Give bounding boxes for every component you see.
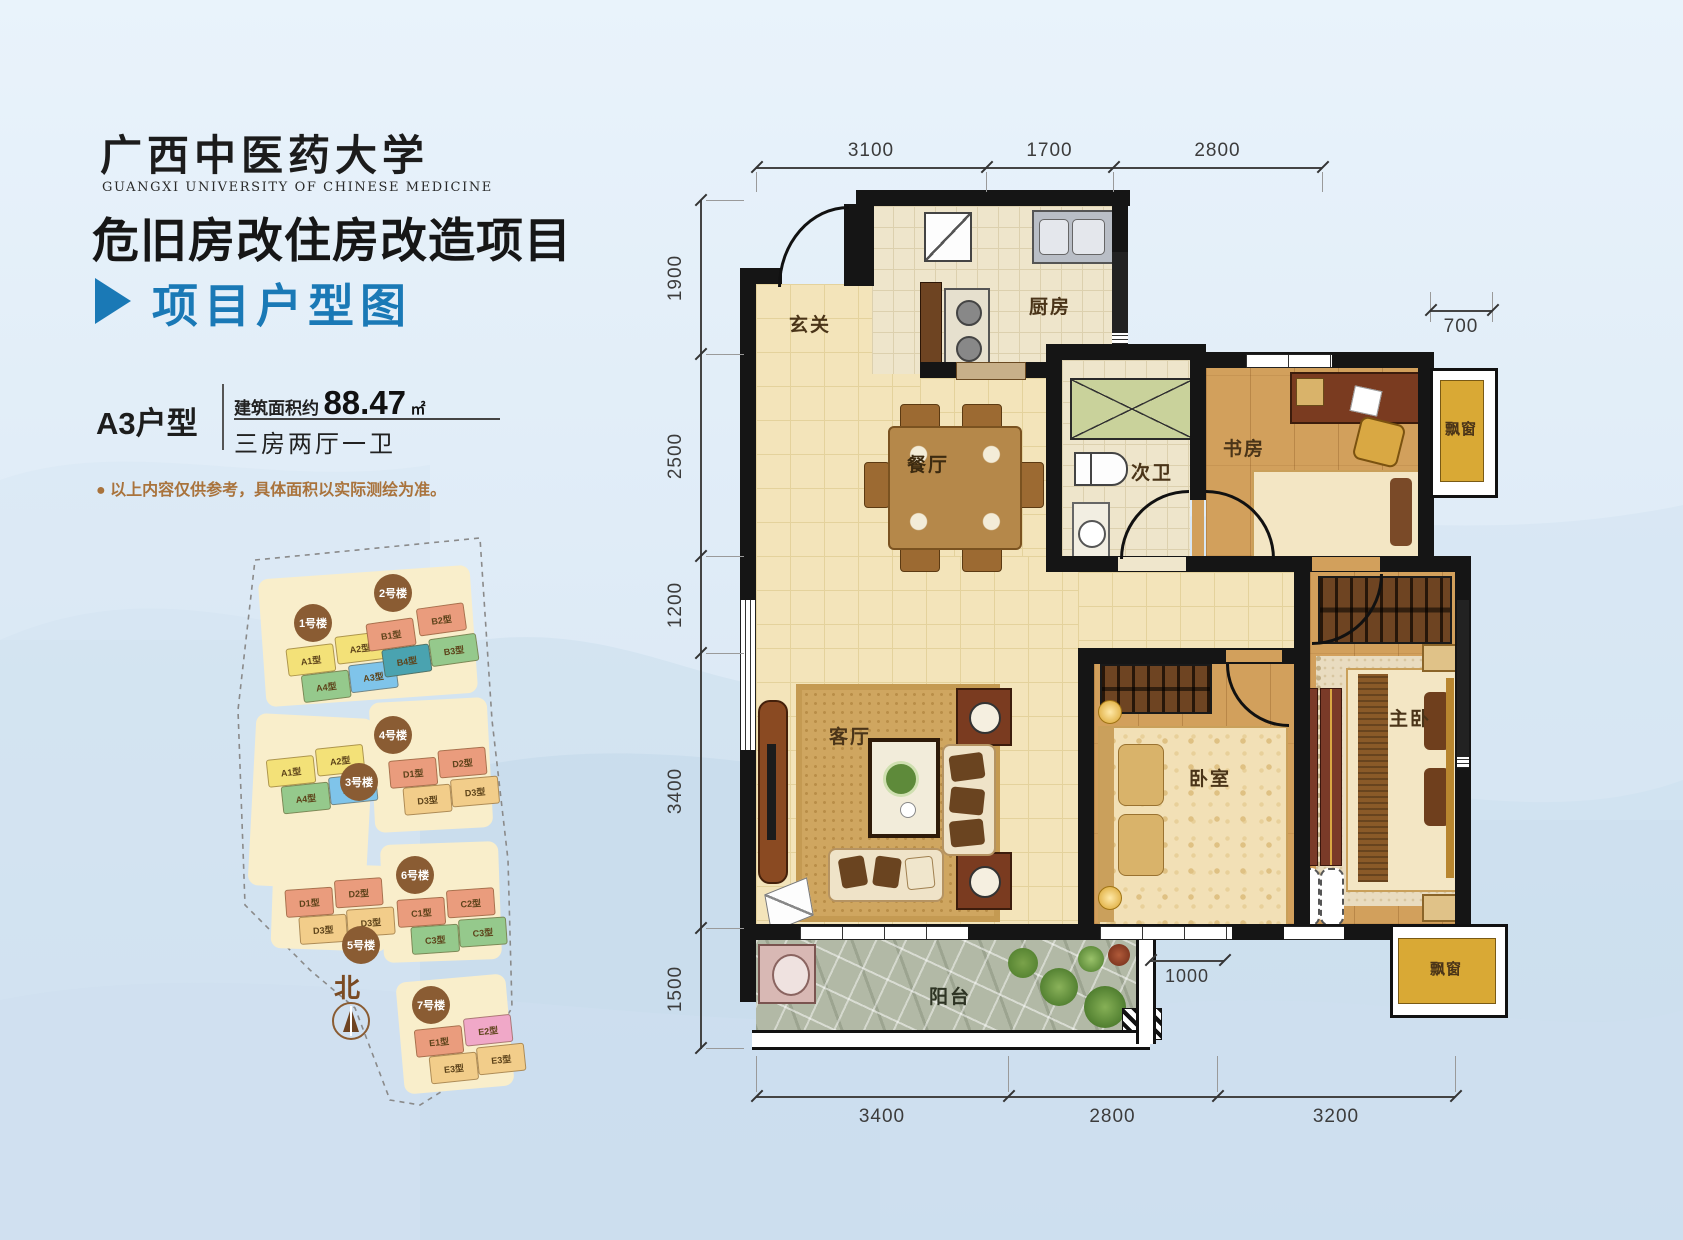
balcony-label: 阳台	[918, 982, 982, 1009]
ext-line	[1113, 172, 1114, 192]
ext-line	[756, 1056, 757, 1092]
dim-left-1: 1900	[665, 238, 687, 318]
bedroom-label: 卧室	[1178, 764, 1242, 791]
unit-type-block: A4型	[281, 782, 332, 815]
dim-left-3: 1200	[665, 565, 687, 645]
master-opening	[1284, 926, 1344, 940]
dim-line-bay	[1430, 310, 1492, 312]
unit-type-label: E1型	[428, 1034, 449, 1049]
north-label: 北	[334, 968, 360, 1005]
dim-bottom-1: 3400	[756, 1106, 1008, 1128]
wall-bath-top	[1046, 344, 1206, 360]
building-badge-1: 1号楼	[294, 604, 332, 642]
bay-window-top-label: 飘窗	[1432, 418, 1490, 439]
study-bed	[1252, 470, 1420, 558]
flower-pot	[1108, 944, 1130, 966]
compass-icon	[332, 1002, 370, 1040]
dim-left-4: 3400	[665, 751, 687, 831]
unit-type-block: E3型	[476, 1043, 527, 1076]
wall-entry-stub	[740, 268, 782, 284]
unit-type-label: D3型	[417, 792, 439, 807]
unit-type-label: E3型	[443, 1060, 464, 1075]
master-door-gap	[1312, 557, 1380, 571]
kitchen-label: 厨房	[1018, 292, 1082, 319]
washing-machine	[758, 944, 816, 1004]
unit-type-block: C1型	[396, 897, 446, 928]
sofa-main	[942, 744, 996, 856]
entry-label: 玄关	[778, 310, 842, 337]
wall-bath-study	[1190, 352, 1206, 500]
dim-line-bottom	[756, 1096, 1455, 1098]
unit-type-block: D3型	[450, 775, 500, 807]
kitchen-door-threshold	[956, 362, 1026, 380]
unit-type-block: B3型	[428, 633, 479, 667]
ext-line	[706, 653, 744, 654]
end-table	[956, 852, 1012, 910]
unit-type-block: E3型	[429, 1052, 480, 1085]
dim-top-1: 3100	[756, 140, 986, 162]
dining-table	[888, 426, 1022, 550]
unit-type-label: A1型	[300, 652, 322, 667]
study-window	[1246, 354, 1332, 368]
bedroom-window	[1100, 926, 1232, 940]
unit-type-block: C3型	[410, 924, 460, 955]
bedside-lamp	[1098, 886, 1122, 910]
building-cluster-6: C1型 C2型 C3型 C3型	[396, 886, 512, 956]
dim-line-left	[700, 200, 702, 1049]
building-badge-3: 3号楼	[340, 763, 378, 801]
wall-kitchen-top	[856, 190, 1130, 206]
unit-type-block: D3型	[402, 784, 452, 816]
unit-type-label: B4型	[396, 653, 418, 669]
ext-line	[1322, 172, 1323, 192]
unit-type-label: C2型	[460, 896, 481, 910]
unit-type-label: A4型	[315, 679, 337, 694]
plant	[1008, 948, 1038, 978]
dim-top-3: 2800	[1113, 140, 1322, 162]
dim-top-2: 1700	[986, 140, 1113, 162]
building-badge-2: 2号楼	[374, 574, 412, 612]
unit-type-label: C1型	[411, 905, 432, 919]
ext-line	[986, 172, 987, 192]
ext-line	[706, 928, 744, 929]
master-label: 主卧	[1380, 704, 1440, 731]
unit-type-block: C3型	[458, 916, 508, 947]
plant	[1040, 968, 1078, 1006]
unit-type-block: B2型	[416, 602, 467, 636]
shower-tray	[1070, 378, 1194, 440]
dim-left-2: 2500	[665, 416, 687, 496]
ext-line	[1217, 1056, 1218, 1092]
bay-window-bottom-label: 飘窗	[1400, 958, 1492, 979]
sliding-door-track	[1320, 868, 1344, 926]
wall-bedroom-master	[1294, 572, 1310, 924]
building-cluster-5: D1型 D2型 D3型 D3型	[284, 876, 400, 946]
unit-type-block: E2型	[463, 1014, 514, 1047]
dim-bottom-3: 3200	[1217, 1106, 1455, 1128]
unit-type-label: A4型	[295, 790, 317, 805]
sofa-small	[828, 848, 944, 902]
bedroom-door-gap	[1226, 650, 1282, 662]
dim-bay: 700	[1430, 316, 1492, 338]
kitchen-cabinet	[920, 282, 942, 366]
end-table	[956, 688, 1012, 746]
study-door-gap	[1192, 500, 1204, 556]
bath-door-gap	[1118, 557, 1186, 571]
poster-canvas: 广西中医药大学 GUANGXI UNIVERSITY OF CHINESE ME…	[0, 0, 1683, 1240]
unit-type-label: E2型	[477, 1023, 498, 1038]
unit-type-label: B2型	[430, 612, 452, 628]
unit-type-block: D2型	[334, 877, 384, 908]
master-bed	[1346, 668, 1458, 892]
unit-type-label: A1型	[280, 764, 302, 779]
ext-line	[706, 200, 744, 201]
ext-line	[706, 556, 744, 557]
building-badge-6: 6号楼	[396, 856, 434, 894]
tv-cabinet	[758, 700, 788, 884]
unit-type-label: B1型	[380, 627, 402, 643]
unit-type-label: C3型	[425, 932, 446, 946]
ext-line	[756, 172, 757, 192]
corridor-floor	[1078, 572, 1294, 648]
wall-kitchen-bottom	[920, 362, 956, 378]
ext-line	[706, 354, 744, 355]
bedroom-bed	[1098, 726, 1288, 928]
dim-balcony: 1000	[1138, 966, 1236, 987]
dim-bottom-2: 2800	[1008, 1106, 1217, 1128]
ext-line	[1008, 1056, 1009, 1092]
building-badge-5: 5号楼	[342, 926, 380, 964]
plant	[1078, 946, 1104, 972]
nightstand	[1422, 894, 1458, 922]
fridge	[924, 212, 972, 262]
ext-line	[1455, 1056, 1456, 1092]
living-label: 客厅	[818, 722, 882, 749]
unit-type-label: D1型	[402, 765, 424, 780]
unit-type-block: D1型	[284, 887, 334, 918]
dim-line-balcony	[1150, 960, 1224, 962]
unit-type-label: D2型	[452, 755, 474, 770]
building-badge-7: 7号楼	[412, 986, 450, 1024]
unit-type-label: C3型	[472, 925, 493, 939]
sliding-door-panel	[1320, 688, 1342, 866]
kitchen-sink	[1032, 210, 1114, 264]
unit-type-block: D2型	[437, 746, 487, 778]
kitchen-window	[1112, 252, 1128, 344]
unit-type-label: E3型	[491, 1051, 512, 1066]
unit-type-block: A4型	[301, 669, 352, 703]
bedside-lamp	[1098, 700, 1122, 724]
wall-bath-left	[1046, 344, 1062, 572]
unit-type-label: D1型	[299, 895, 320, 909]
plant	[1084, 986, 1126, 1028]
coffee-table	[868, 738, 940, 838]
dining-chair	[864, 462, 890, 508]
bath-sink	[1072, 502, 1110, 564]
wall-bedroom-left	[1078, 648, 1094, 924]
balcony-slide-door	[800, 926, 968, 940]
balcony-rail-bottom	[752, 1030, 1150, 1050]
unit-type-label: D3型	[313, 922, 334, 936]
unit-type-block: D3型	[298, 914, 348, 945]
dining-label: 餐厅	[896, 450, 960, 477]
wall-balcony-stub	[740, 940, 756, 1002]
bath-label: 次卫	[1120, 458, 1184, 485]
unit-type-label: D2型	[348, 886, 369, 900]
unit-type-block: D1型	[388, 757, 438, 789]
unit-type-label: D3型	[464, 784, 486, 799]
living-window	[740, 600, 756, 750]
study-label: 书房	[1212, 434, 1276, 461]
unit-type-label: B3型	[443, 642, 465, 658]
nightstand	[1422, 644, 1458, 672]
ext-line	[706, 1048, 744, 1049]
dim-left-5: 1500	[665, 949, 687, 1029]
dim-line-top	[756, 167, 1322, 169]
desk	[1290, 372, 1420, 424]
master-window	[1457, 600, 1469, 768]
building-cluster-4: D1型 D2型 D3型 D3型	[388, 745, 505, 817]
building-badge-4: 4号楼	[374, 716, 412, 754]
unit-type-block: C2型	[446, 887, 496, 918]
